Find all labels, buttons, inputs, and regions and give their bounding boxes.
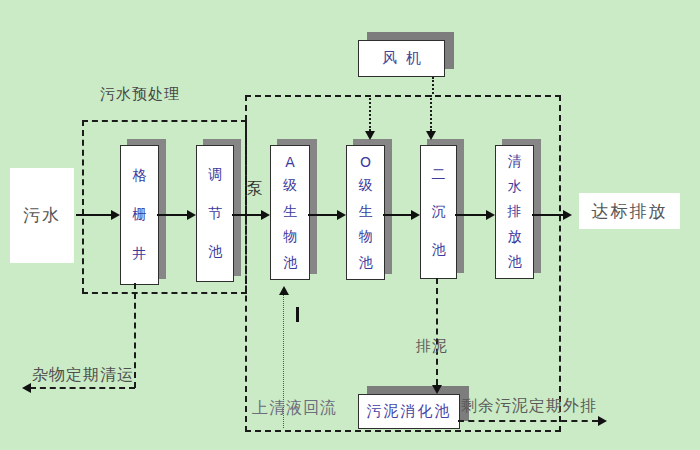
fan-connector-line [432, 77, 434, 94]
clear-water-label: 清水排放池 [496, 146, 533, 278]
arrow-right-icon [261, 210, 270, 220]
flow-arrow-abio-to-obio [308, 214, 337, 216]
fan-box: 风机 [358, 40, 445, 77]
air-line-to-obio [369, 95, 371, 131]
secondary-sedimentation-label: 二沉池 [421, 146, 456, 278]
arrow-up-icon [279, 286, 289, 295]
sludge-digestion-tank: 污泥消化池 [358, 394, 460, 429]
arrow-right-icon [598, 416, 607, 426]
excess-sludge-line [458, 420, 598, 422]
pretreatment-label: 污水预处理 [100, 86, 180, 103]
a-bio-label: A级生物池 [271, 146, 309, 279]
arrow-right-icon [411, 210, 420, 220]
valve-tick-mark [296, 307, 299, 322]
sludge-discharge-label: 排泥 [416, 338, 448, 355]
grid-well-label: 格栅井 [121, 146, 158, 284]
arrow-left-icon [22, 383, 31, 393]
sludge-line-vertical [436, 278, 438, 385]
arrow-down-icon [426, 131, 436, 140]
flow-arrow-influent-to-gridwell [76, 214, 111, 216]
influent-label: 污水 [23, 204, 61, 227]
regulating-label: 调节池 [197, 146, 233, 281]
regulating-tank: 调节池 [196, 145, 234, 282]
air-line-to-secondary [430, 95, 432, 131]
fan-label: 风机 [382, 49, 430, 68]
arrow-down-icon [365, 131, 375, 140]
flow-arrow-clearwater-to-discharge [532, 214, 563, 216]
arrow-down-icon [432, 385, 442, 394]
o-bio-tank: O级生物池 [346, 145, 385, 280]
supernatant-return-label: 上清液回流 [252, 399, 337, 417]
secondary-sedimentation-tank: 二沉池 [420, 145, 457, 279]
debris-removal-label: 杂物定期清运 [32, 366, 134, 384]
flow-arrow-secondary-to-clearwater [455, 214, 486, 216]
process-flow-diagram: 污水预处理 污水 达标排放 风机 格栅井 调节池 A级生物池 O级生物池 二沉池… [0, 0, 700, 450]
arrow-right-icon [187, 210, 196, 220]
flow-arrow-obio-to-secondary [383, 214, 411, 216]
arrow-right-icon [486, 210, 495, 220]
discharge-label: 达标排放 [592, 200, 668, 223]
discharge-box: 达标排放 [579, 193, 680, 229]
sludge-digestion-label: 污泥消化池 [367, 402, 452, 421]
debris-line-vertical [134, 283, 136, 388]
arrow-right-icon [111, 210, 120, 220]
pump-label: 泵 [247, 180, 264, 198]
excess-sludge-label: 剩余污泥定期外排 [461, 397, 597, 415]
o-bio-label: O级生物池 [347, 146, 384, 279]
clear-water-tank: 清水排放池 [495, 145, 534, 279]
grid-well-tank: 格栅井 [120, 145, 159, 285]
flow-arrow-regulating-to-abio [232, 214, 261, 216]
a-bio-tank: A级生物池 [270, 145, 310, 280]
arrow-right-icon [563, 210, 572, 220]
flow-arrow-gridwell-to-regulating [157, 214, 187, 216]
debris-line-horizontal [30, 387, 135, 389]
influent-box: 污水 [10, 168, 74, 263]
arrow-right-icon [337, 210, 346, 220]
